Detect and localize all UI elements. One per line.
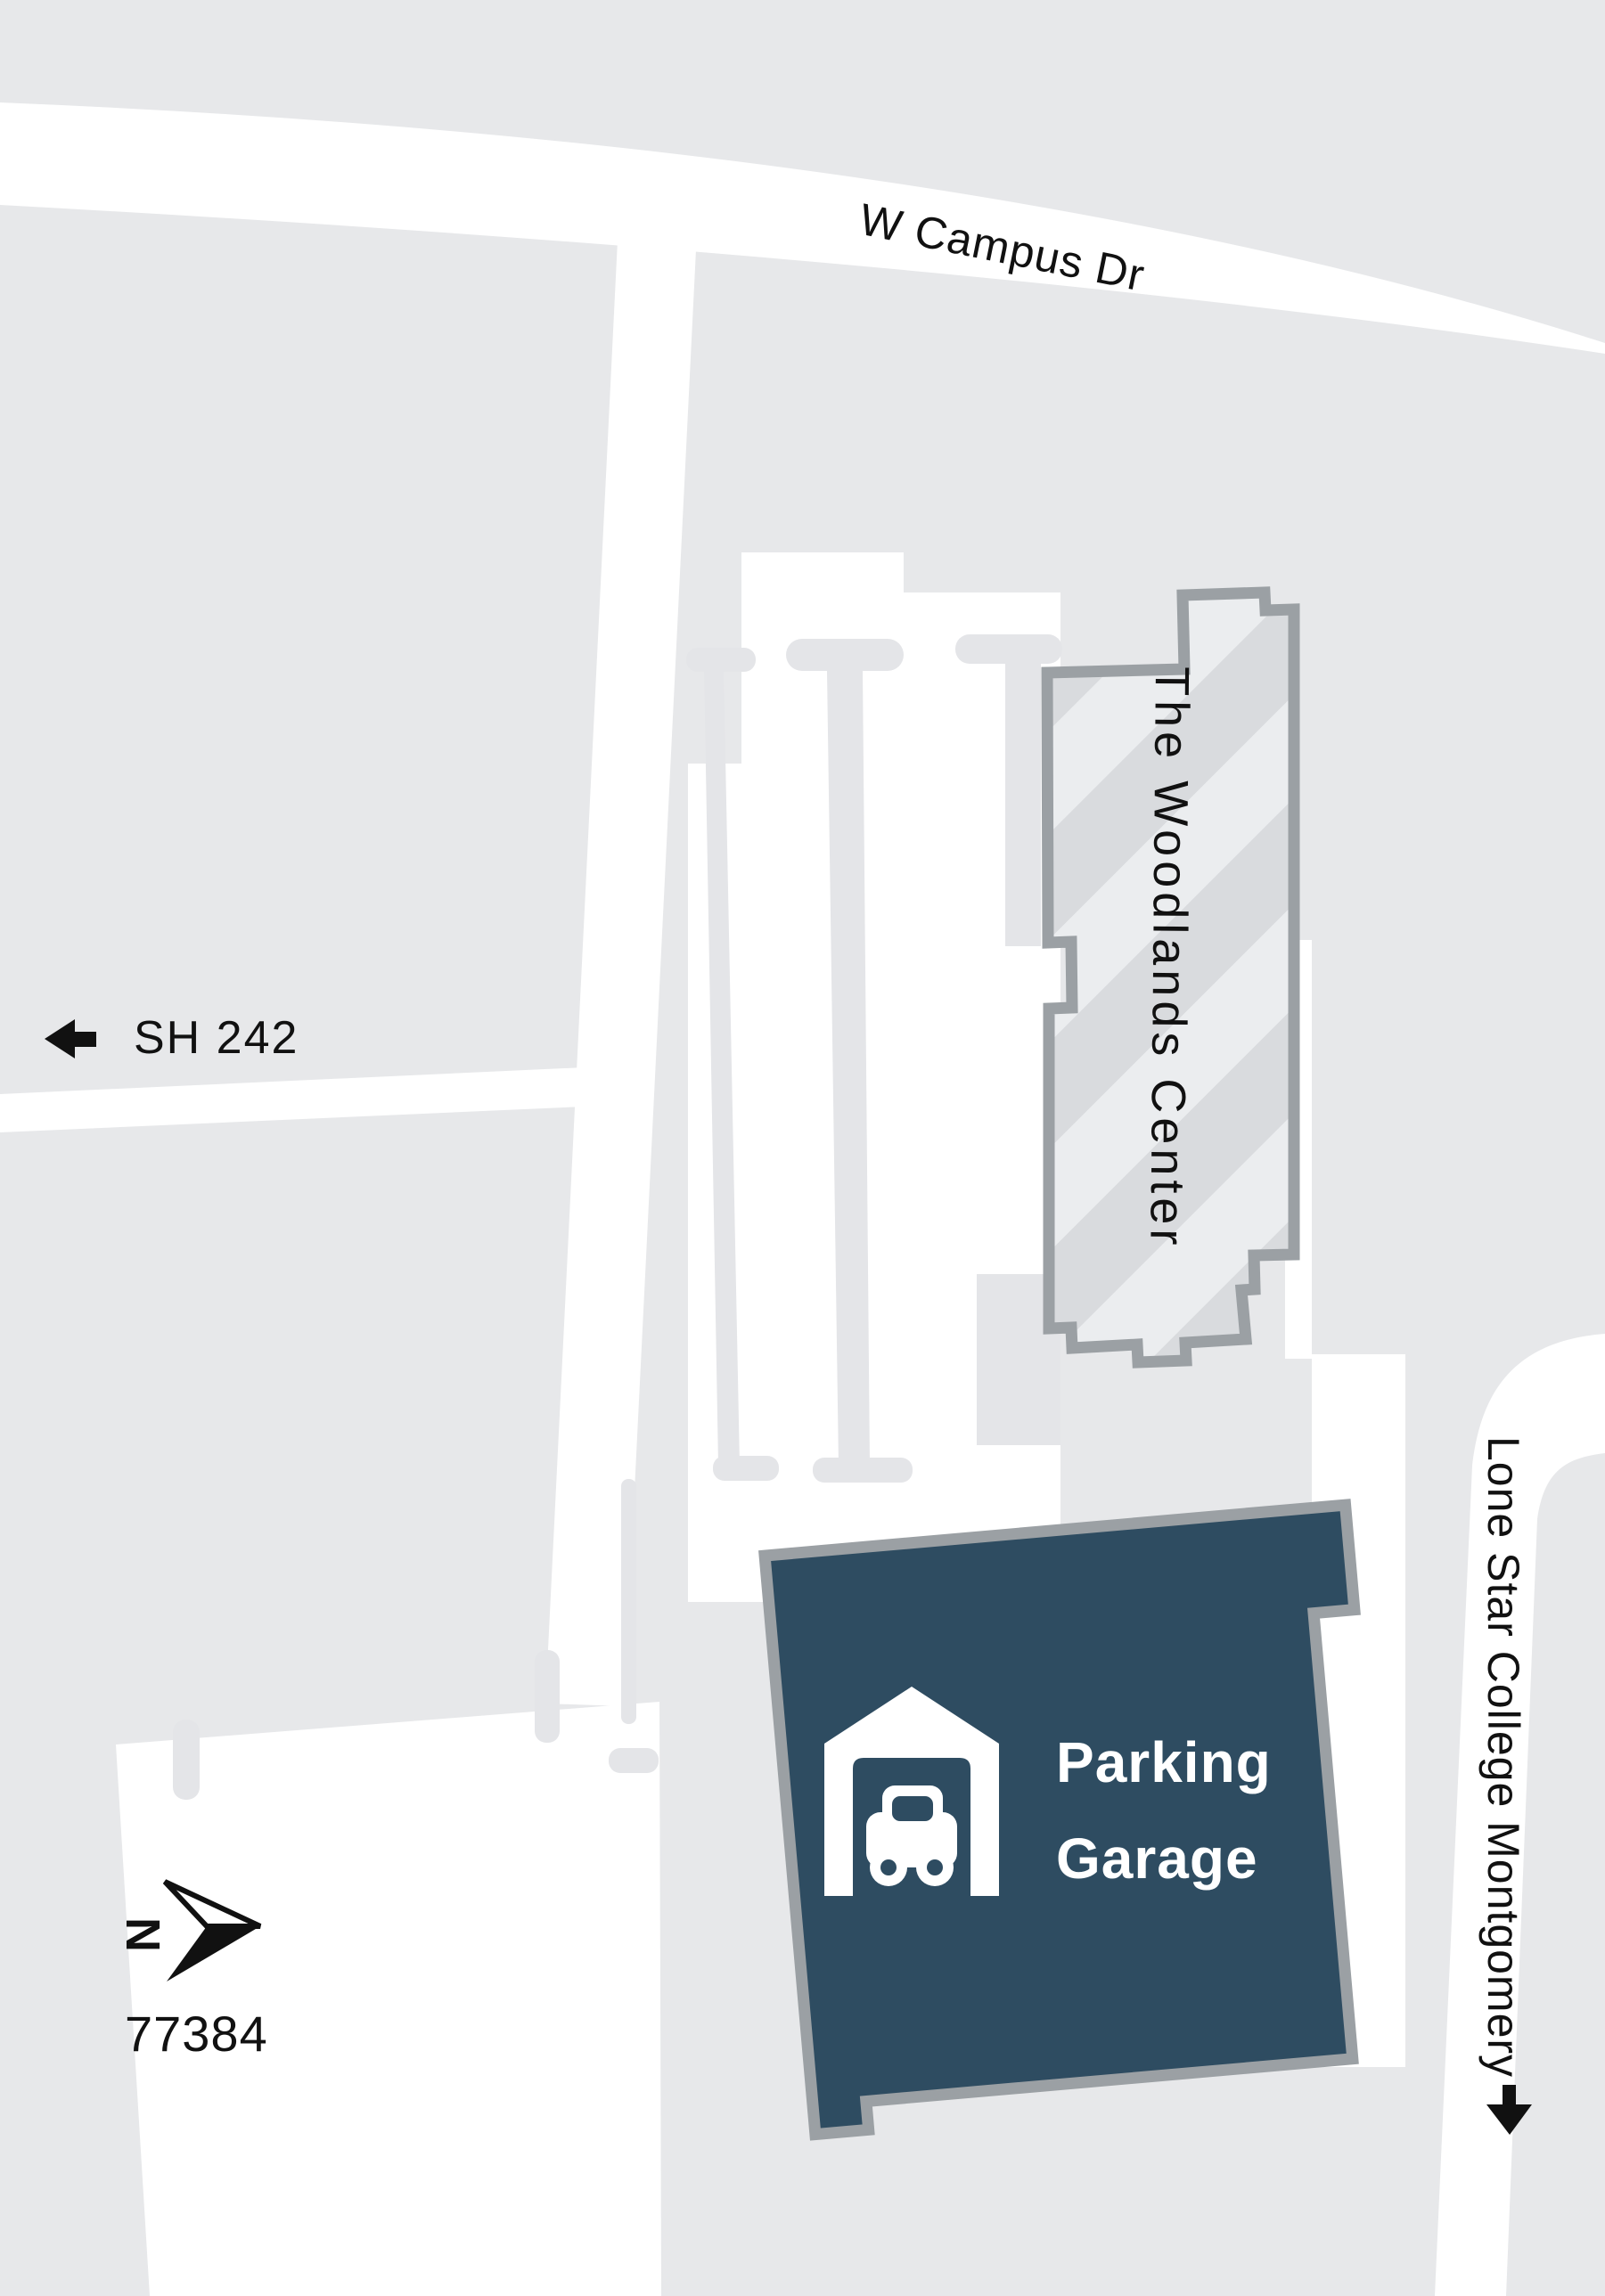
zip-code-label: 77384 [125,2006,268,2062]
woodlands-center-label: The Woodlands Center [1140,666,1199,1250]
campus-map-canvas: The Woodlands Center Parking Garage W Ca… [0,0,1605,2296]
walkway-center-foot [813,1458,913,1483]
walkway-west-foot [713,1456,779,1481]
walkway-bar-east [955,634,1062,664]
lot-peg-center [535,1650,560,1743]
campus-map: The Woodlands Center Parking Garage W Ca… [0,0,1605,2296]
parking-garage-label-line1: Parking [1056,1730,1272,1794]
lot-peg-east [609,1748,659,1773]
walkway-west-cap [686,648,756,672]
walkway-center-cap [786,639,904,671]
sh-242-label: SH 242 [134,1012,299,1064]
west-arrow-shaft [71,1032,96,1047]
lot-peg-west [173,1720,200,1800]
lot-median-strip [621,1479,636,1724]
parking-garage-building [765,1505,1396,2135]
walkway-column-east-upper [1005,664,1041,946]
lone-star-montgomery-label: Lone Star College Montgomery [1478,1436,1528,2078]
parking-garage-footprint [765,1505,1396,2135]
car-hub-left-icon [880,1859,897,1875]
parking-garage-label-line2: Garage [1056,1826,1258,1891]
car-windshield-icon [892,1796,933,1821]
car-hub-right-icon [927,1859,943,1875]
compass-north-label: N [116,1917,169,1952]
